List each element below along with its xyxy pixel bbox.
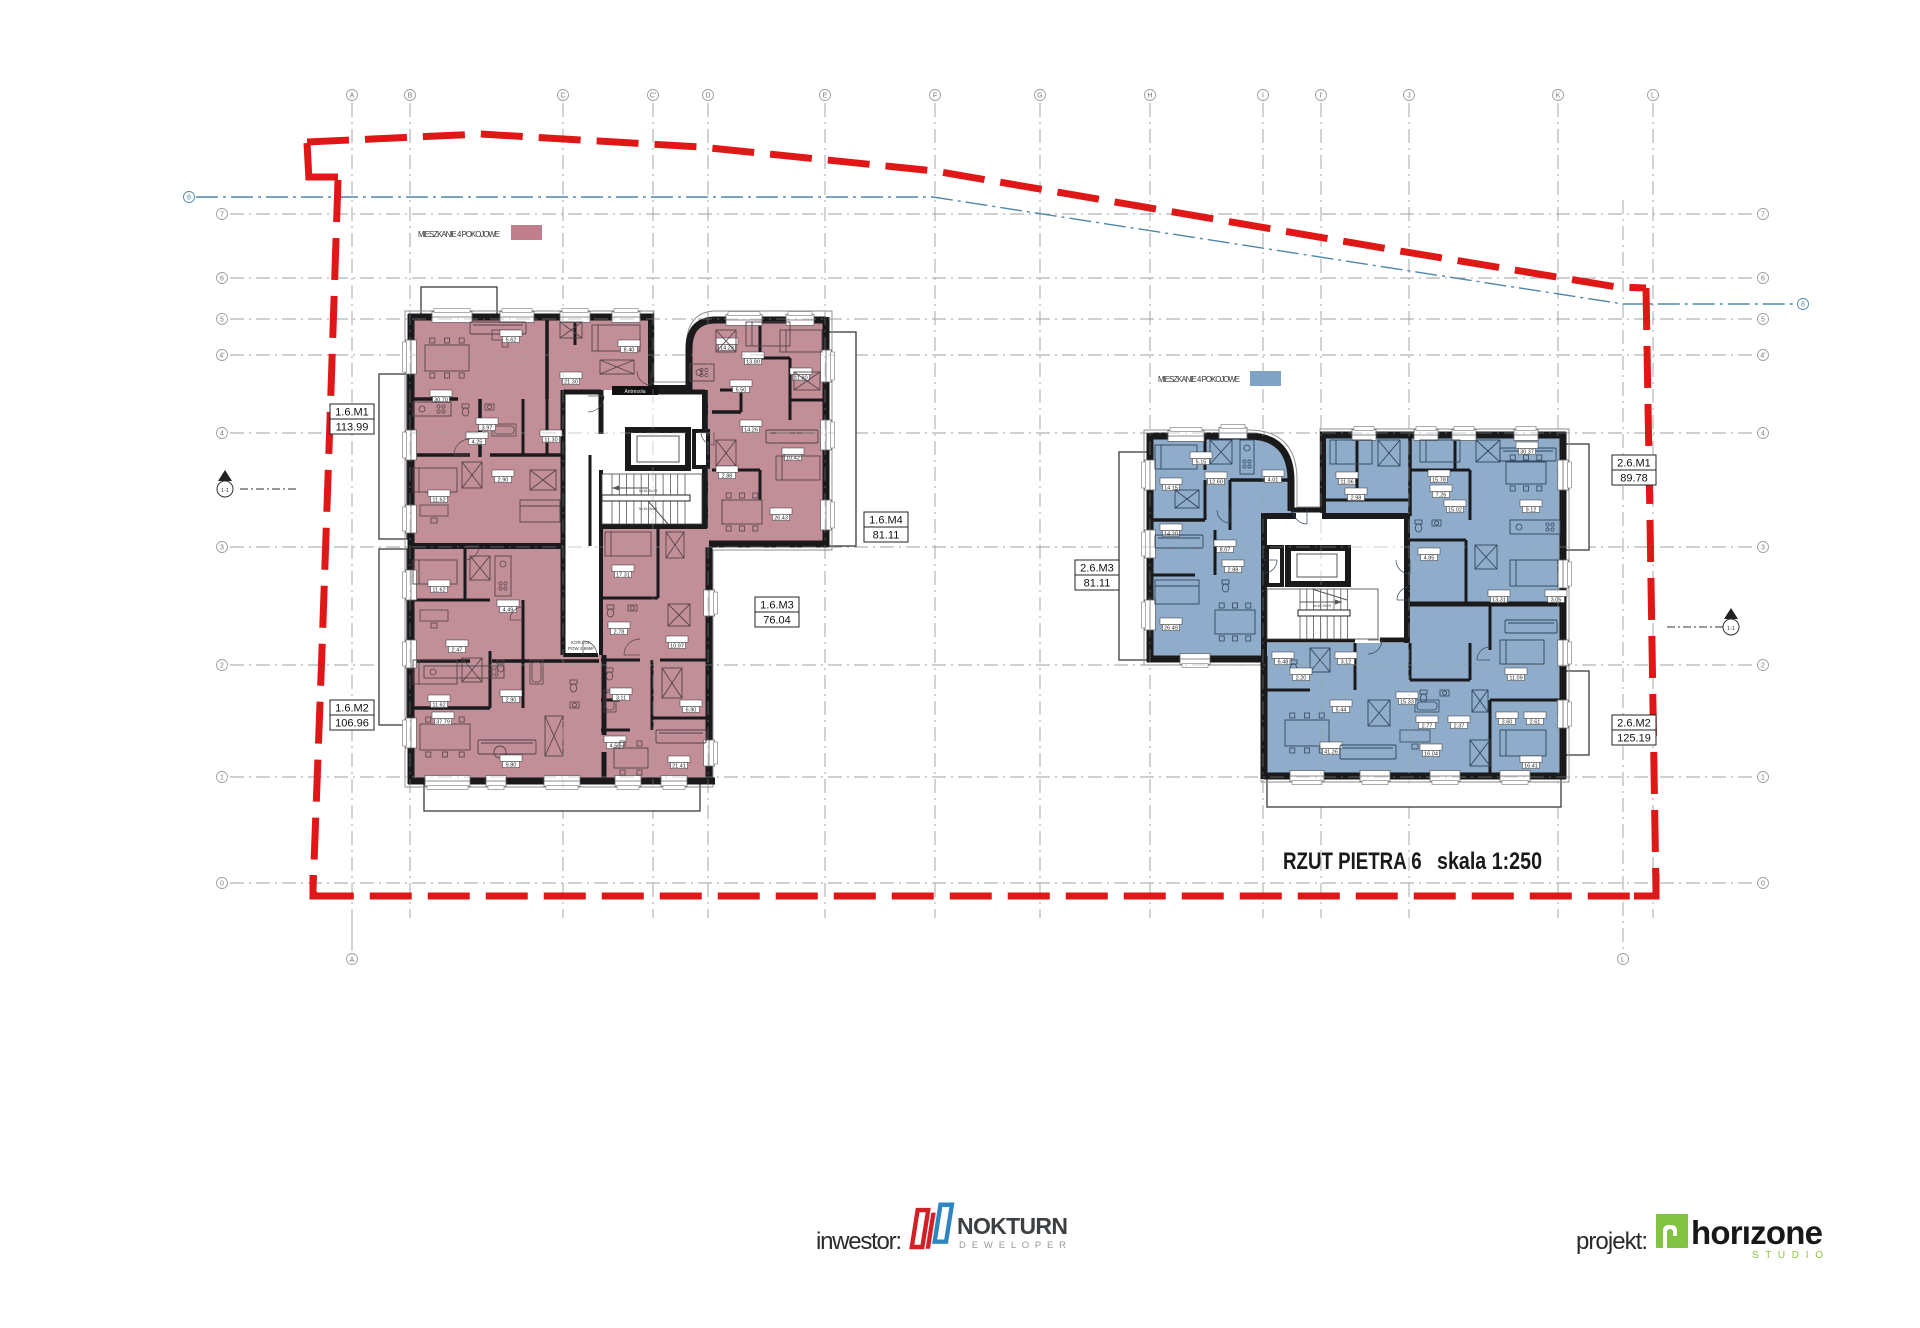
svg-text:9.80: 9.80 — [506, 763, 517, 769]
svg-text:26.43: 26.43 — [774, 516, 788, 522]
svg-text:11.62: 11.62 — [432, 703, 445, 709]
svg-text:D: D — [705, 93, 710, 100]
svg-text:2.47: 2.47 — [452, 648, 463, 654]
svg-text:26.49: 26.49 — [1164, 626, 1178, 632]
svg-text:Antresola: Antresola — [624, 389, 645, 395]
svg-text:B: B — [408, 93, 413, 100]
svg-text:37.79: 37.79 — [436, 720, 450, 726]
svg-text:KOR.LOK: KOR.LOK — [571, 640, 591, 645]
svg-text:4.56: 4.56 — [610, 744, 621, 750]
svg-text:projekt:: projekt: — [1576, 1228, 1648, 1255]
svg-text:2.6.M1: 2.6.M1 — [1617, 458, 1651, 470]
svg-text:8.07: 8.07 — [1220, 548, 1231, 554]
svg-text:1.6.M4: 1.6.M4 — [869, 515, 903, 527]
svg-text:MIESZKANIE 4 POKOJOWE: MIESZKANIE 4 POKOJOWE — [1158, 375, 1240, 384]
svg-text:9x16,5x29: 9x16,5x29 — [1313, 603, 1332, 608]
svg-text:3.97: 3.97 — [482, 426, 493, 432]
svg-text:3.05: 3.05 — [1551, 598, 1562, 604]
svg-text:8: 8 — [1801, 302, 1805, 309]
svg-text:horızone: horızone — [1691, 1214, 1823, 1251]
svg-text:16.41: 16.41 — [1524, 764, 1538, 770]
svg-text:10.42: 10.42 — [786, 456, 800, 462]
svg-text:5.44: 5.44 — [1336, 708, 1347, 714]
svg-text:S T U D I O: S T U D I O — [1752, 1250, 1823, 1261]
svg-text:0: 0 — [1761, 881, 1765, 888]
svg-text:1-1: 1-1 — [221, 488, 229, 494]
svg-text:5: 5 — [220, 317, 224, 324]
svg-text:4': 4' — [219, 353, 224, 360]
svg-text:G: G — [1037, 93, 1042, 100]
svg-text:3.60: 3.60 — [1502, 720, 1513, 726]
svg-text:11.06: 11.06 — [1340, 480, 1353, 486]
svg-text:F: F — [933, 93, 937, 100]
svg-text:2.88: 2.88 — [722, 474, 733, 480]
svg-text:30.70: 30.70 — [434, 398, 448, 404]
svg-text:4.01: 4.01 — [1268, 478, 1279, 484]
svg-text:A: A — [350, 957, 355, 964]
svg-text:MIESZKANIE 4 POKOJOWE: MIESZKANIE 4 POKOJOWE — [418, 230, 500, 239]
svg-text:2: 2 — [1761, 663, 1765, 670]
svg-text:2.77: 2.77 — [1422, 724, 1433, 730]
svg-text:D E W E L O P E R: D E W E L O P E R — [959, 1240, 1066, 1251]
svg-text:J: J — [1407, 93, 1411, 100]
svg-text:12.60: 12.60 — [1209, 480, 1223, 486]
svg-text:C: C — [560, 93, 565, 100]
svg-text:13.80: 13.80 — [746, 360, 760, 366]
svg-text:4': 4' — [1760, 353, 1765, 360]
svg-text:17.31: 17.31 — [616, 573, 630, 579]
svg-text:2.61: 2.61 — [1530, 720, 1541, 726]
svg-text:9.12: 9.12 — [1526, 508, 1537, 514]
svg-text:NOKTURN: NOKTURN — [957, 1213, 1068, 1239]
svg-text:2: 2 — [220, 663, 224, 670]
svg-text:106.96: 106.96 — [335, 718, 369, 730]
svg-text:11.62: 11.62 — [432, 498, 445, 504]
svg-text:K: K — [1556, 93, 1561, 100]
svg-text:4.25: 4.25 — [472, 440, 483, 446]
svg-text:H: H — [1147, 93, 1152, 100]
svg-text:81.11: 81.11 — [873, 530, 900, 542]
svg-text:E: E — [823, 93, 828, 100]
svg-text:8.40: 8.40 — [624, 348, 635, 354]
svg-text:21.41: 21.41 — [672, 764, 686, 770]
svg-text:1.6.M1: 1.6.M1 — [335, 407, 369, 419]
svg-text:4: 4 — [220, 431, 224, 438]
svg-text:11.09: 11.09 — [1509, 676, 1522, 682]
svg-text:2.90: 2.90 — [506, 698, 517, 704]
svg-text:2.6.M3: 2.6.M3 — [1080, 563, 1114, 575]
svg-text:skala 1:250: skala 1:250 — [1437, 847, 1542, 874]
svg-text:0: 0 — [220, 881, 224, 888]
svg-text:30.37: 30.37 — [1520, 450, 1534, 456]
svg-text:9x16,5x29: 9x16,5x29 — [639, 488, 658, 493]
svg-text:I: I — [1262, 93, 1264, 100]
svg-text:7: 7 — [220, 212, 224, 219]
svg-text:6: 6 — [220, 276, 224, 283]
svg-text:6.90: 6.90 — [686, 708, 697, 714]
svg-text:11.30: 11.30 — [544, 438, 557, 444]
svg-text:5.50: 5.50 — [736, 388, 747, 394]
svg-text:76.04: 76.04 — [763, 615, 791, 627]
svg-text:8: 8 — [187, 195, 191, 202]
svg-text:C': C' — [650, 93, 656, 100]
svg-text:14.28: 14.28 — [720, 346, 734, 352]
svg-text:2.98: 2.98 — [1351, 496, 1362, 502]
svg-text:2.78: 2.78 — [614, 630, 625, 636]
svg-text:81.11: 81.11 — [1084, 578, 1111, 590]
svg-text:9x16,5x29: 9x16,5x29 — [639, 506, 658, 511]
svg-text:L: L — [1651, 93, 1655, 100]
svg-text:6: 6 — [1761, 276, 1765, 283]
svg-text:15.33: 15.33 — [1400, 700, 1414, 706]
svg-text:2.88: 2.88 — [1228, 568, 1239, 574]
svg-text:4: 4 — [1761, 431, 1765, 438]
svg-text:3: 3 — [1761, 545, 1765, 552]
svg-text:113.99: 113.99 — [336, 422, 369, 434]
svg-text:16.04: 16.04 — [1424, 752, 1438, 758]
svg-text:A: A — [350, 93, 355, 100]
svg-text:I': I' — [1319, 93, 1322, 100]
svg-text:4.85: 4.85 — [1424, 556, 1435, 562]
svg-text:1.6.M3: 1.6.M3 — [760, 600, 794, 612]
svg-text:15.02: 15.02 — [1448, 508, 1462, 514]
svg-text:21.30: 21.30 — [564, 380, 578, 386]
svg-text:inwestor:: inwestor: — [816, 1228, 902, 1255]
svg-text:10.97: 10.97 — [670, 644, 684, 650]
svg-text:5.15: 5.15 — [1196, 460, 1207, 466]
svg-text:41.26: 41.26 — [1324, 750, 1338, 756]
svg-text:5: 5 — [1761, 317, 1765, 324]
svg-text:5.62: 5.62 — [506, 338, 517, 344]
svg-text:3: 3 — [220, 545, 224, 552]
svg-text:4.49: 4.49 — [503, 608, 514, 614]
svg-text:1: 1 — [1761, 775, 1765, 782]
svg-text:RZUT PIETRA 6: RZUT PIETRA 6 — [1283, 848, 1422, 875]
svg-text:2.90: 2.90 — [498, 478, 509, 484]
svg-text:7: 7 — [1761, 212, 1765, 219]
svg-text:7.26: 7.26 — [1436, 493, 1447, 499]
svg-text:1-1: 1-1 — [1727, 626, 1735, 632]
svg-text:15.78: 15.78 — [1432, 478, 1446, 484]
svg-text:2.6.M2: 2.6.M2 — [1617, 718, 1651, 730]
svg-text:89.78: 89.78 — [1620, 473, 1648, 485]
svg-text:125.19: 125.19 — [1617, 733, 1651, 745]
svg-text:2.37: 2.37 — [1454, 724, 1465, 730]
svg-text:13.31: 13.31 — [1492, 598, 1506, 604]
svg-text:3.11: 3.11 — [616, 696, 626, 702]
svg-text:POW 2,69M²: POW 2,69M² — [568, 646, 595, 651]
svg-text:L: L — [1621, 957, 1625, 964]
svg-text:11.62: 11.62 — [432, 588, 445, 594]
svg-text:1: 1 — [220, 775, 224, 782]
svg-text:1.6.M2: 1.6.M2 — [335, 703, 369, 715]
svg-text:2.20: 2.20 — [1296, 676, 1307, 682]
